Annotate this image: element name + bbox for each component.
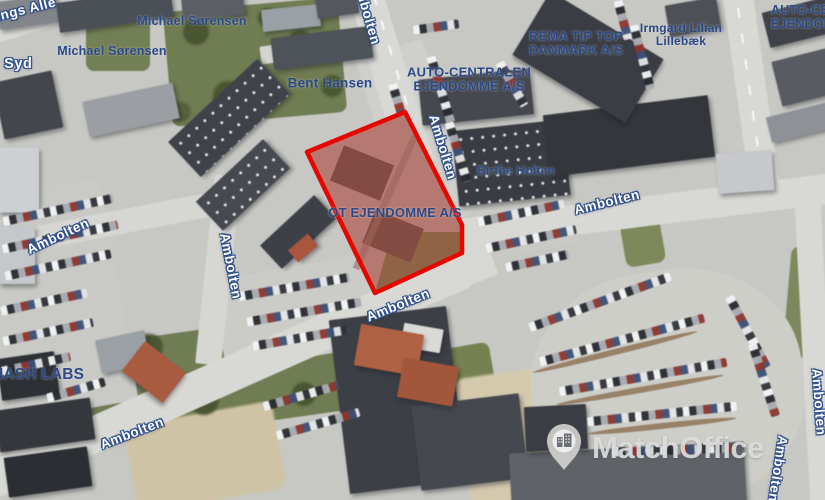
street-label-ambolten-east: Ambolten: [573, 187, 642, 218]
company-label-bent-hansen: Bent Hansen: [288, 77, 373, 92]
street-label-ambolten-west-vertical: Ambolten: [217, 232, 245, 301]
company-label-birthe-holten: Birthe Holten: [477, 164, 555, 177]
aerial-map-image: Michael Sørensen Michael Sørensen Bent H…: [0, 0, 825, 500]
company-label-michael-sorensen-1: Michael Sørensen: [137, 15, 247, 29]
company-label-nash-labs: NASH LABS: [0, 366, 84, 383]
street-label-ings-alle: ings Allé: [0, 0, 57, 24]
map-pin-icon: [544, 424, 584, 471]
company-label-auto-centralen-corner: AUTO-CENTRALEN EJENDOMME A/S: [771, 4, 825, 32]
street-label-ambolten-right-edge: Ambolten: [809, 368, 825, 436]
matchoffice-watermark: MatchOffice: [544, 424, 764, 471]
company-label-rema-tip-top: REMA TIP TOP DANMARK A/S: [529, 30, 623, 59]
street-label-ambolten-mid-vertical: Ambolten: [426, 113, 460, 182]
matchoffice-wordmark: MatchOffice: [592, 430, 764, 466]
street-label-ambolten-center: Ambolten: [364, 285, 432, 324]
company-label-irmgard-lilian: Irmgard Lilian Lillebæk: [640, 22, 722, 48]
company-label-michael-sorensen-2: Michael Sørensen: [57, 45, 167, 59]
street-label-ambolten-bottom-right: Ambolten: [765, 435, 790, 500]
street-label-ambolten-top: Ambolten: [351, 0, 384, 46]
street-label-g-syd: g Syd: [0, 56, 32, 72]
street-label-ambolten-west: Ambolten: [24, 215, 91, 257]
company-label-ot-ejendomme: OT EJENDOMME A/S: [328, 206, 461, 220]
company-label-auto-centralen: AUTO-CENTRALEN EJENDOMME A/S: [407, 66, 531, 95]
street-label-ambolten-southwest: Ambolten: [98, 414, 166, 452]
